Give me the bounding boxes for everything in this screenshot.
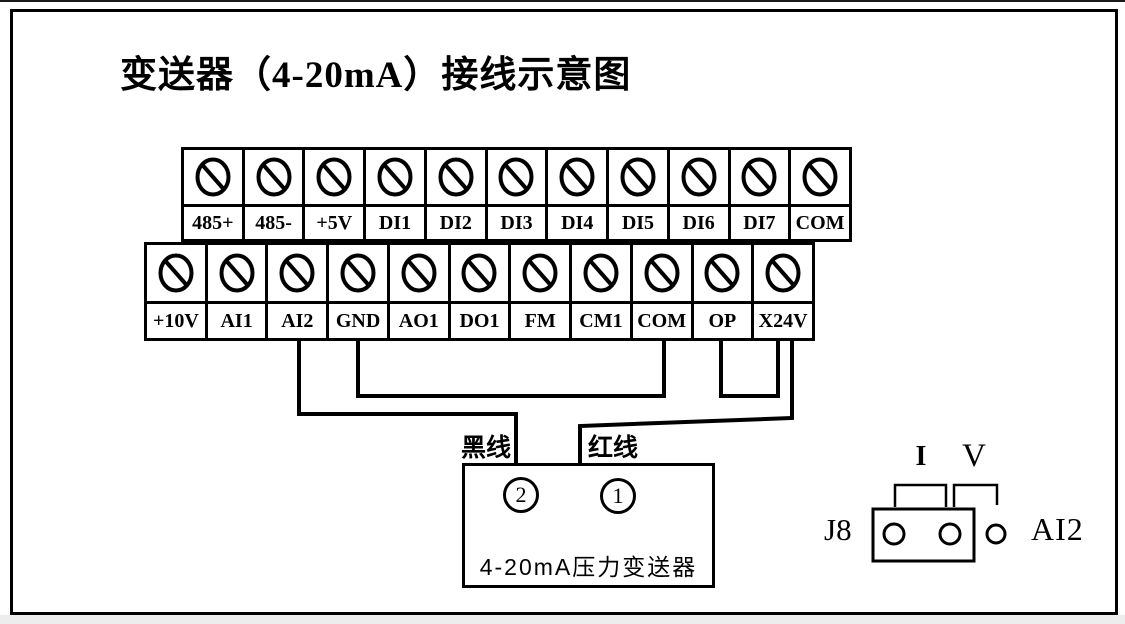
screw-terminal-icon	[702, 252, 742, 294]
terminal-label-CM1: CM1	[572, 304, 630, 338]
bottom-edge-band	[0, 615, 1125, 624]
screw-terminal-CM1	[572, 245, 630, 301]
terminal-label-DI2: DI2	[427, 207, 485, 239]
screw-terminal-icon	[217, 252, 257, 294]
screw-terminal-X24V	[754, 245, 812, 301]
terminal-label-DI4: DI4	[548, 207, 606, 239]
terminal-label-485+: 485+	[184, 207, 242, 239]
screw-terminal-icon	[399, 252, 439, 294]
transmitter-terminal-2-circled: 2	[503, 477, 539, 513]
current-mode-label: I	[912, 441, 930, 473]
screw-terminal-COM	[633, 245, 691, 301]
screw-terminal-icon	[763, 252, 803, 294]
screw-terminal-DI4	[548, 150, 606, 204]
screw-terminal-icon	[618, 156, 658, 198]
screw-terminal-OP	[694, 245, 752, 301]
screw-terminal-485+	[184, 150, 242, 204]
screw-terminal-DI1	[366, 150, 424, 204]
screw-terminal-DI5	[609, 150, 667, 204]
terminal-label-AO1: AO1	[390, 304, 448, 338]
terminal-label-AI1: AI1	[208, 304, 266, 338]
transmitter-terminal-1-circled: 1	[600, 478, 636, 514]
screw-terminal-DI7	[731, 150, 789, 204]
screw-terminal-icon	[436, 156, 476, 198]
screw-terminal-icon	[459, 252, 499, 294]
terminal-label-+10V: +10V	[147, 304, 205, 338]
screw-terminal-icon	[156, 252, 196, 294]
terminal-label-DI3: DI3	[488, 207, 546, 239]
terminal-label-OP: OP	[694, 304, 752, 338]
screw-terminal-icon	[520, 252, 560, 294]
terminal-strip-top: 485+485-+5VDI1DI2DI3DI4DI5DI6DI7COM	[181, 147, 852, 242]
screw-terminal-485-	[245, 150, 303, 204]
screw-terminal-icon	[679, 156, 719, 198]
transmitter-name: 4-20mA压力变送器	[465, 548, 712, 582]
screw-terminal-DI2	[427, 150, 485, 204]
screw-terminal-DO1	[451, 245, 509, 301]
screw-terminal-icon	[496, 156, 536, 198]
terminal-label-+5V: +5V	[305, 207, 363, 239]
screw-terminal-AI1	[208, 245, 266, 301]
screw-terminal-AI2	[268, 245, 326, 301]
screw-terminal-AO1	[390, 245, 448, 301]
terminal-label-485-: 485-	[245, 207, 303, 239]
screw-terminal-icon	[338, 252, 378, 294]
j8-connector-label: J8	[824, 512, 852, 548]
pressure-transmitter-box: 2 1 4-20mA压力变送器	[462, 463, 715, 588]
screw-terminal-icon	[375, 156, 415, 198]
screw-terminal-icon	[557, 156, 597, 198]
wiring-diagram: 变送器（4-20mA）接线示意图 485+485-+5VDI1DI2DI3DI4…	[0, 0, 1125, 624]
top-edge-line	[0, 0, 1125, 2]
j8-channel-label: AI2	[1031, 511, 1084, 548]
screw-terminal-+5V	[305, 150, 363, 204]
screw-terminal-icon	[254, 156, 294, 198]
terminal-label-DI6: DI6	[670, 207, 728, 239]
screw-terminal-icon	[277, 252, 317, 294]
screw-terminal-icon	[193, 156, 233, 198]
terminal-label-X24V: X24V	[754, 304, 812, 338]
red-wire-label: 红线	[588, 428, 638, 464]
terminal-label-DI5: DI5	[609, 207, 667, 239]
screw-terminal-+10V	[147, 245, 205, 301]
terminal-label-COM: COM	[633, 304, 691, 338]
voltage-mode-label: V	[960, 438, 988, 475]
screw-terminal-DI3	[488, 150, 546, 204]
terminal-label-DI7: DI7	[731, 207, 789, 239]
screw-terminal-icon	[581, 252, 621, 294]
diagram-title: 变送器（4-20mA）接线示意图	[120, 44, 631, 98]
screw-terminal-icon	[800, 156, 840, 198]
terminal-label-GND: GND	[329, 304, 387, 338]
terminal-label-AI2: AI2	[268, 304, 326, 338]
screw-terminal-COM	[791, 150, 849, 204]
terminal-label-DI1: DI1	[366, 207, 424, 239]
terminal-strip-bottom: +10VAI1AI2GNDAO1DO1FMCM1COMOPX24V	[144, 242, 815, 341]
terminal-label-DO1: DO1	[451, 304, 509, 338]
screw-terminal-DI6	[670, 150, 728, 204]
terminal-label-FM: FM	[511, 304, 569, 338]
screw-terminal-icon	[739, 156, 779, 198]
screw-terminal-FM	[511, 245, 569, 301]
screw-terminal-icon	[642, 252, 682, 294]
black-wire-label: 黑线	[461, 428, 511, 464]
screw-terminal-GND	[329, 245, 387, 301]
screw-terminal-icon	[314, 156, 354, 198]
terminal-label-COM: COM	[791, 207, 849, 239]
